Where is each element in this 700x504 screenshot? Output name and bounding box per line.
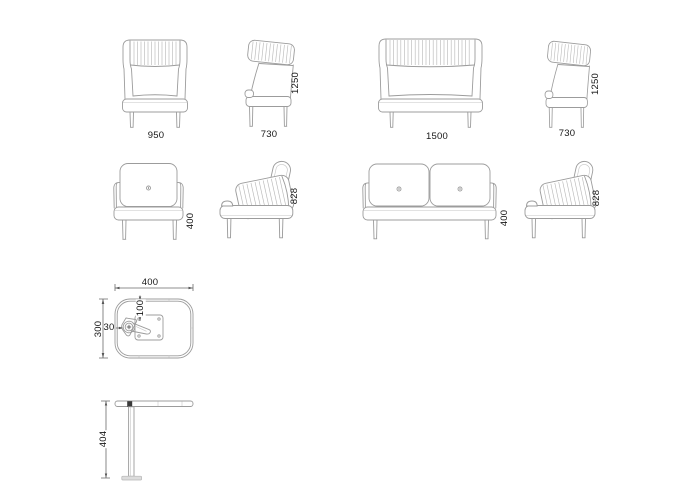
- dim-high-chair-height: 1250: [291, 72, 301, 94]
- table-base: [122, 476, 142, 480]
- high-back-sofa-front-view: [379, 39, 483, 127]
- dim-low-sofa-back-height: 828: [592, 190, 602, 206]
- dim-low-chair-seat-height: 400: [186, 213, 196, 229]
- dim-high-sofa-width: 1500: [426, 132, 448, 142]
- cable-clamp-top: [122, 318, 151, 336]
- cable-clamp-side: [127, 401, 132, 407]
- dim-table-height: 404: [99, 430, 109, 448]
- dim-table-plate-inset: 100: [136, 299, 146, 317]
- high-back-sofa-side-view: [545, 41, 591, 128]
- dim-table-clamp-offset: 30: [104, 323, 115, 333]
- dim-high-chair-width: 950: [148, 131, 164, 141]
- high-back-chair-side-view: [245, 40, 295, 127]
- low-back-sofa-side-view: [525, 160, 597, 238]
- dim-low-sofa-seat-height: 400: [500, 210, 510, 226]
- table-side-view: [115, 401, 193, 480]
- dim-high-chair-depth: 730: [261, 130, 277, 140]
- dim-high-sofa-height: 1250: [591, 73, 601, 95]
- technical-drawing-sheet: 950 730 1250 1500 730 1250 400 828 400 8…: [0, 0, 700, 504]
- low-back-chair-front-view: [114, 164, 183, 240]
- low-back-chair-side-view: [220, 160, 295, 238]
- dim-table-width: 400: [142, 278, 158, 288]
- table-top-view: [115, 299, 193, 358]
- high-back-chair-front-view: [123, 40, 188, 127]
- low-back-sofa-front-view: [363, 164, 496, 239]
- dim-low-chair-back-height: 828: [290, 188, 300, 204]
- dim-high-sofa-depth: 730: [559, 129, 575, 139]
